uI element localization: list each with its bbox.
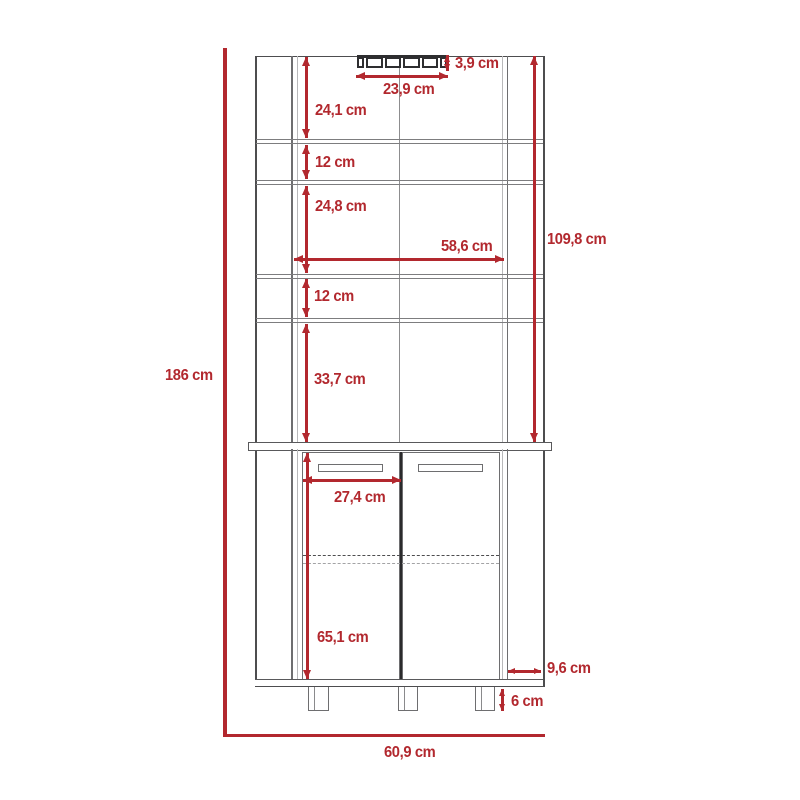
door-gap-line <box>400 452 403 681</box>
lower-cabinet-label: 65,1 cm <box>317 630 368 646</box>
leg-center <box>398 687 418 711</box>
hidden-shelf-dashed-line-2 <box>303 563 499 564</box>
leg-edge-line <box>314 687 315 710</box>
dim-arrow-bottle-rack-height <box>446 55 449 71</box>
overall-height-label: 186 cm <box>165 368 213 384</box>
upper-right-panel-line-inner <box>502 56 503 443</box>
dim-arrow-fourth-section <box>305 279 308 317</box>
bottle-slot <box>366 57 383 68</box>
shelf-line-4 <box>256 318 543 323</box>
dim-arrow-door-width <box>303 479 401 482</box>
leg-height-label: 6 cm <box>511 694 543 710</box>
shelf-line-3 <box>256 274 543 279</box>
door-left <box>302 452 400 683</box>
dim-arrow-lower-cabinet <box>306 453 309 679</box>
second-section-label: 12 cm <box>315 155 355 171</box>
lower-right-panel-line-inner <box>502 449 503 681</box>
fourth-section-label: 12 cm <box>314 289 354 305</box>
bottle-slot <box>385 57 402 68</box>
interior-width-label: 58,6 cm <box>441 239 492 255</box>
shelf-line-1 <box>256 139 543 144</box>
dim-arrow-upper-cavity <box>533 56 536 442</box>
dimension-diagram: 186 cm 60,9 cm 109,8 cm 58,6 cm 3,9 cm 2… <box>0 0 800 800</box>
door-handle-right <box>418 464 483 472</box>
bottle-rack-slots <box>357 57 447 69</box>
leg-left <box>308 687 329 711</box>
dim-arrow-top-section <box>305 57 308 138</box>
bottle-slot <box>403 57 420 68</box>
door-width-label: 27,4 cm <box>334 490 385 506</box>
fifth-section-label: 33,7 cm <box>314 372 365 388</box>
lower-left-panel-line-inner <box>297 449 298 681</box>
shelf-line-2 <box>256 180 543 185</box>
leg-edge-line <box>404 687 405 710</box>
door-handle-left <box>318 464 383 472</box>
dim-arrow-side-panel <box>508 670 541 673</box>
bottle-slot <box>357 57 364 68</box>
bottle-rack-height-label: 3,9 cm <box>455 56 499 72</box>
leg-right <box>475 687 495 711</box>
upper-right-panel-line <box>507 56 509 443</box>
lower-right-panel-line <box>507 449 509 681</box>
bottle-rack-width-label: 23,9 cm <box>383 82 434 98</box>
top-section-label: 24,1 cm <box>315 103 366 119</box>
third-section-label: 24,8 cm <box>315 199 366 215</box>
dim-arrow-second-section <box>305 145 308 179</box>
bottle-rack <box>357 55 447 69</box>
dim-arrow-leg-height <box>501 689 504 711</box>
overall-height-line <box>223 48 227 737</box>
dim-arrow-interior-width <box>294 258 504 261</box>
upper-left-panel-line-inner <box>297 56 298 443</box>
dim-arrow-bottle-rack-width <box>356 75 448 78</box>
door-right <box>402 452 500 683</box>
overall-width-line <box>223 734 545 738</box>
upper-center-divider-line <box>399 56 400 443</box>
upper-cavity-label: 109,8 cm <box>547 232 606 248</box>
upper-left-panel-line <box>291 56 293 443</box>
dim-arrow-fifth-section <box>305 324 308 442</box>
side-panel-label: 9,6 cm <box>547 661 591 677</box>
bottle-slot <box>422 57 439 68</box>
lower-left-panel-line <box>291 449 293 681</box>
cabinet-base-panel <box>255 679 543 686</box>
overall-width-label: 60,9 cm <box>384 745 435 761</box>
hidden-shelf-dashed-line <box>303 555 499 556</box>
leg-edge-line <box>481 687 482 710</box>
